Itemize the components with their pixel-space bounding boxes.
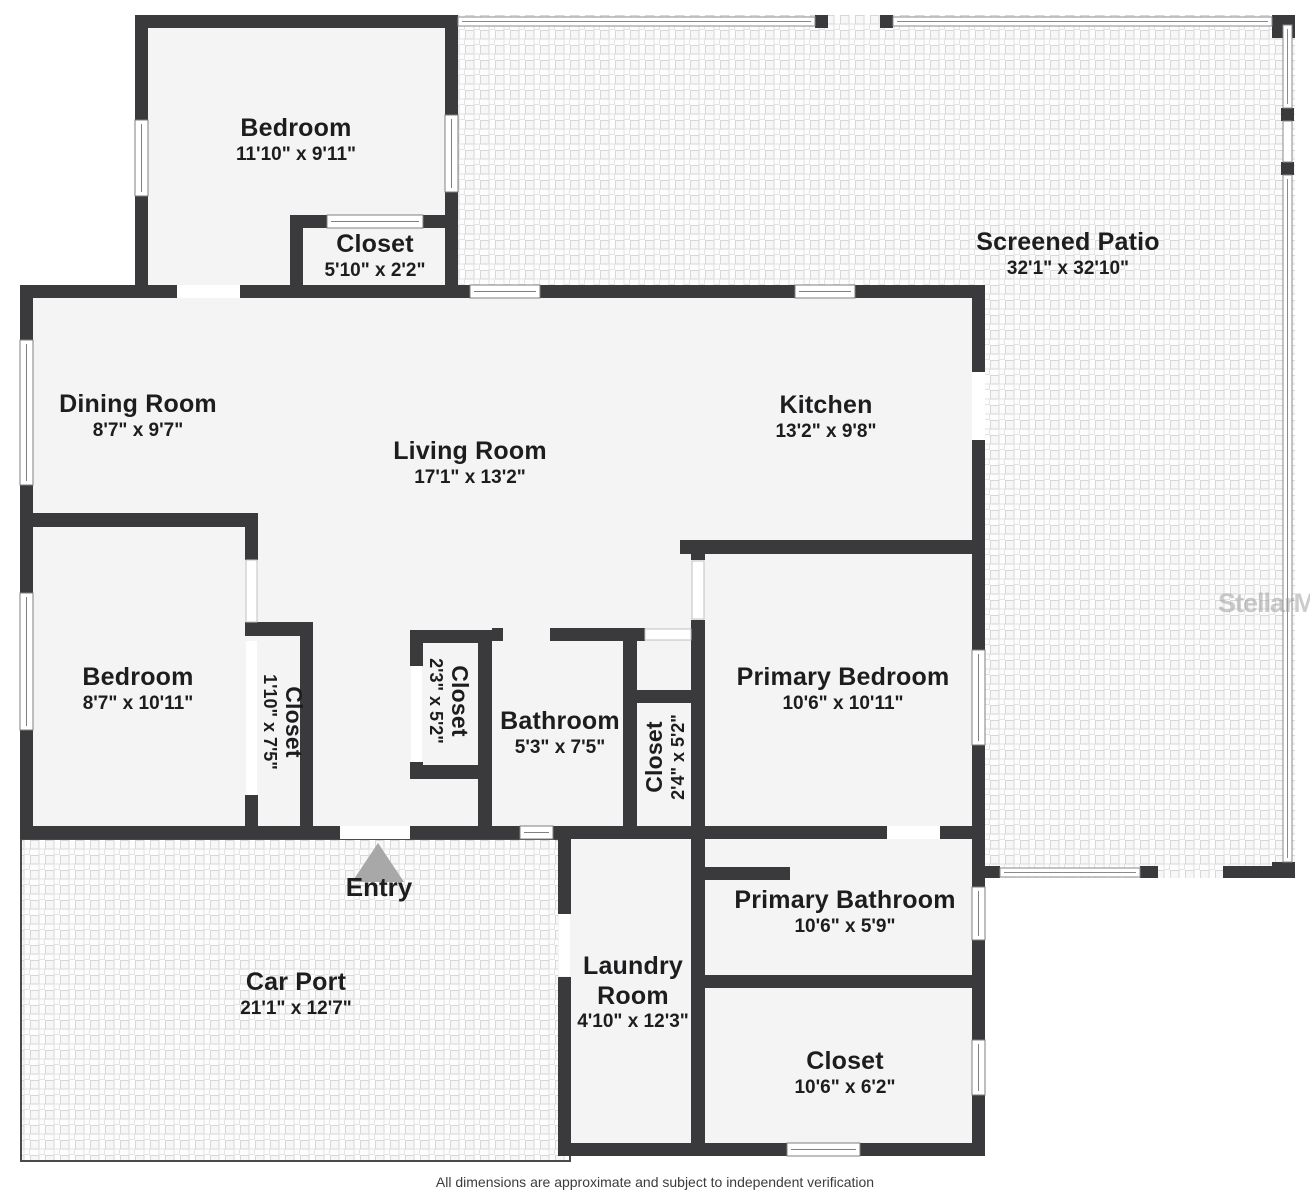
footer-disclaimer: All dimensions are approximate and subje… — [0, 1174, 1310, 1190]
carport-floor-hatch — [21, 839, 570, 1161]
watermark-stellar-mls: StellarMLS — [1218, 588, 1310, 619]
floorplan-drawing — [0, 0, 1310, 1200]
floor-plan: Bedroom 11'10" x 9'11" Closet 5'10" x 2'… — [0, 0, 1310, 1200]
entry-label: Entry — [346, 872, 412, 903]
